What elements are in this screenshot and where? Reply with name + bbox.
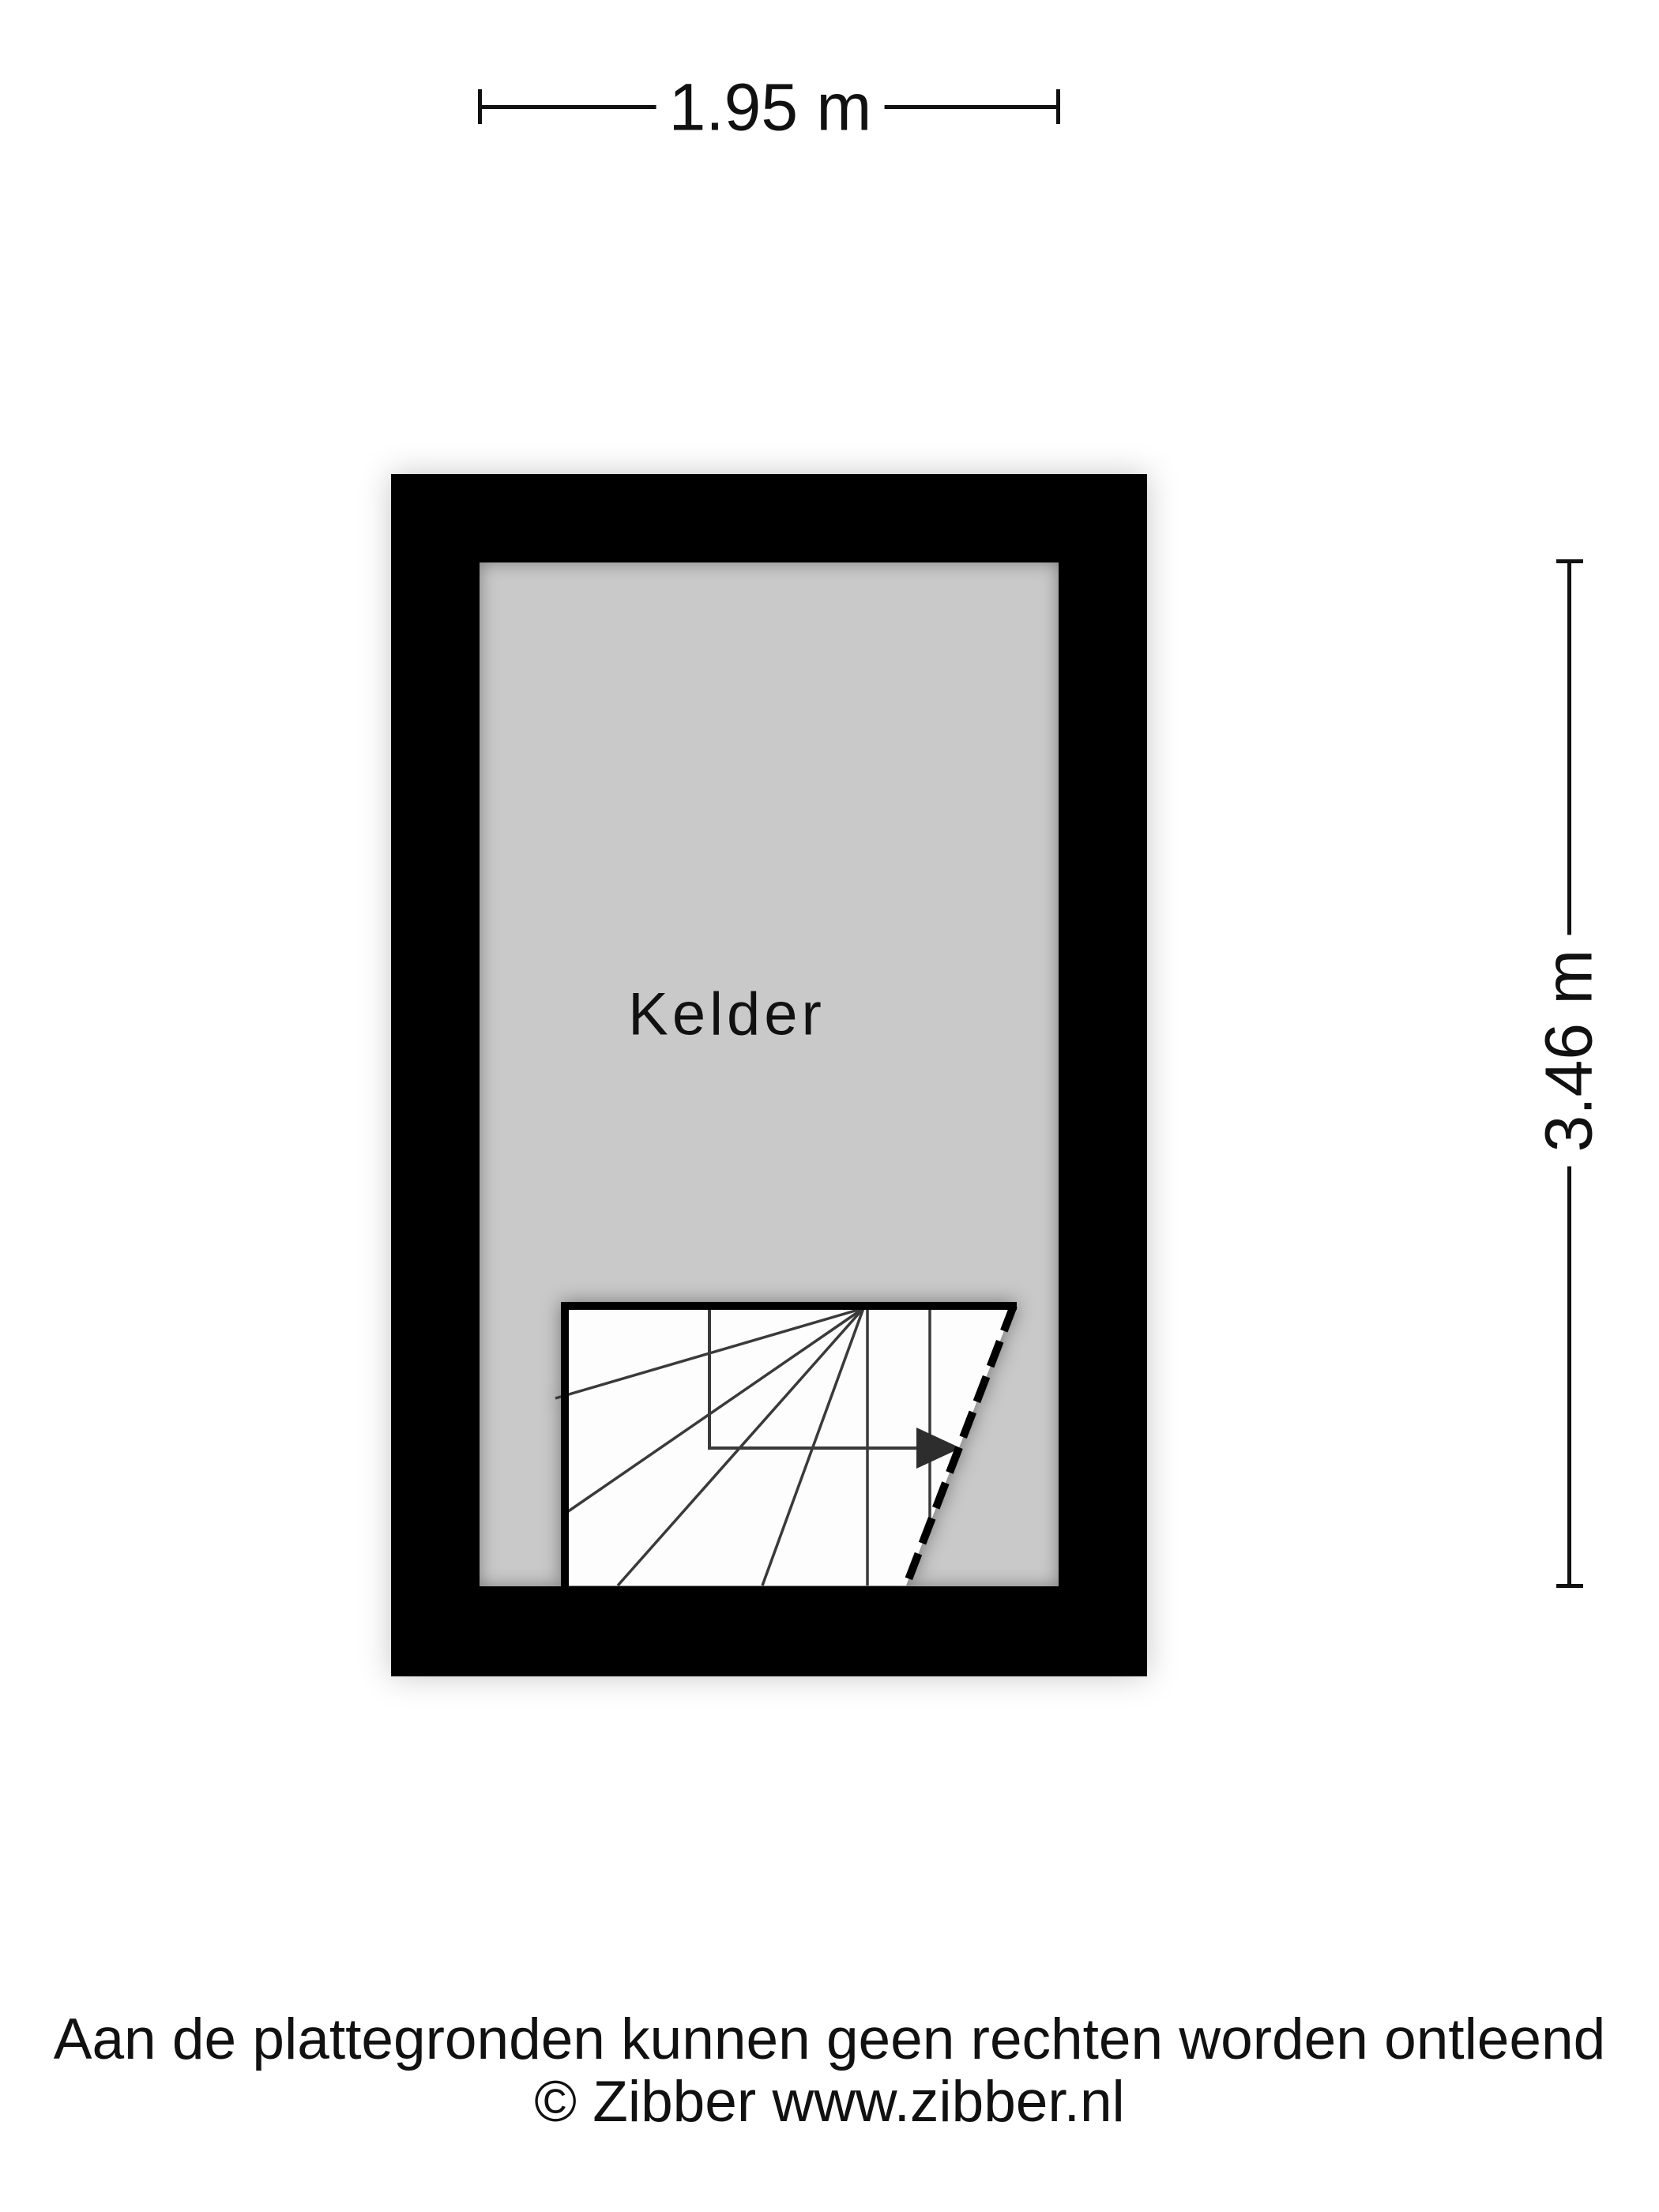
height-dimension-tick-top — [1556, 559, 1583, 563]
width-dimension-tick-left — [478, 89, 482, 124]
footer-disclaimer: Aan de plattegronden kunnen geen rechten… — [0, 2008, 1659, 2133]
staircase-drawing — [545, 1292, 1027, 1592]
room-label: Kelder — [628, 980, 826, 1049]
height-dimension-label: 3.46 m — [1531, 935, 1608, 1167]
disclaimer-text: Aan de plattegronden kunnen geen rechten… — [0, 2008, 1659, 2071]
copyright-text: © Zibber www.zibber.nl — [0, 2071, 1659, 2133]
height-dimension-tick-bottom — [1556, 1584, 1583, 1588]
width-dimension-label: 1.95 m — [656, 70, 885, 146]
floorplan-page: 1.95 m 3.46 m Kelder Aan de platt — [0, 0, 1659, 2212]
width-dimension-tick-right — [1056, 89, 1060, 124]
